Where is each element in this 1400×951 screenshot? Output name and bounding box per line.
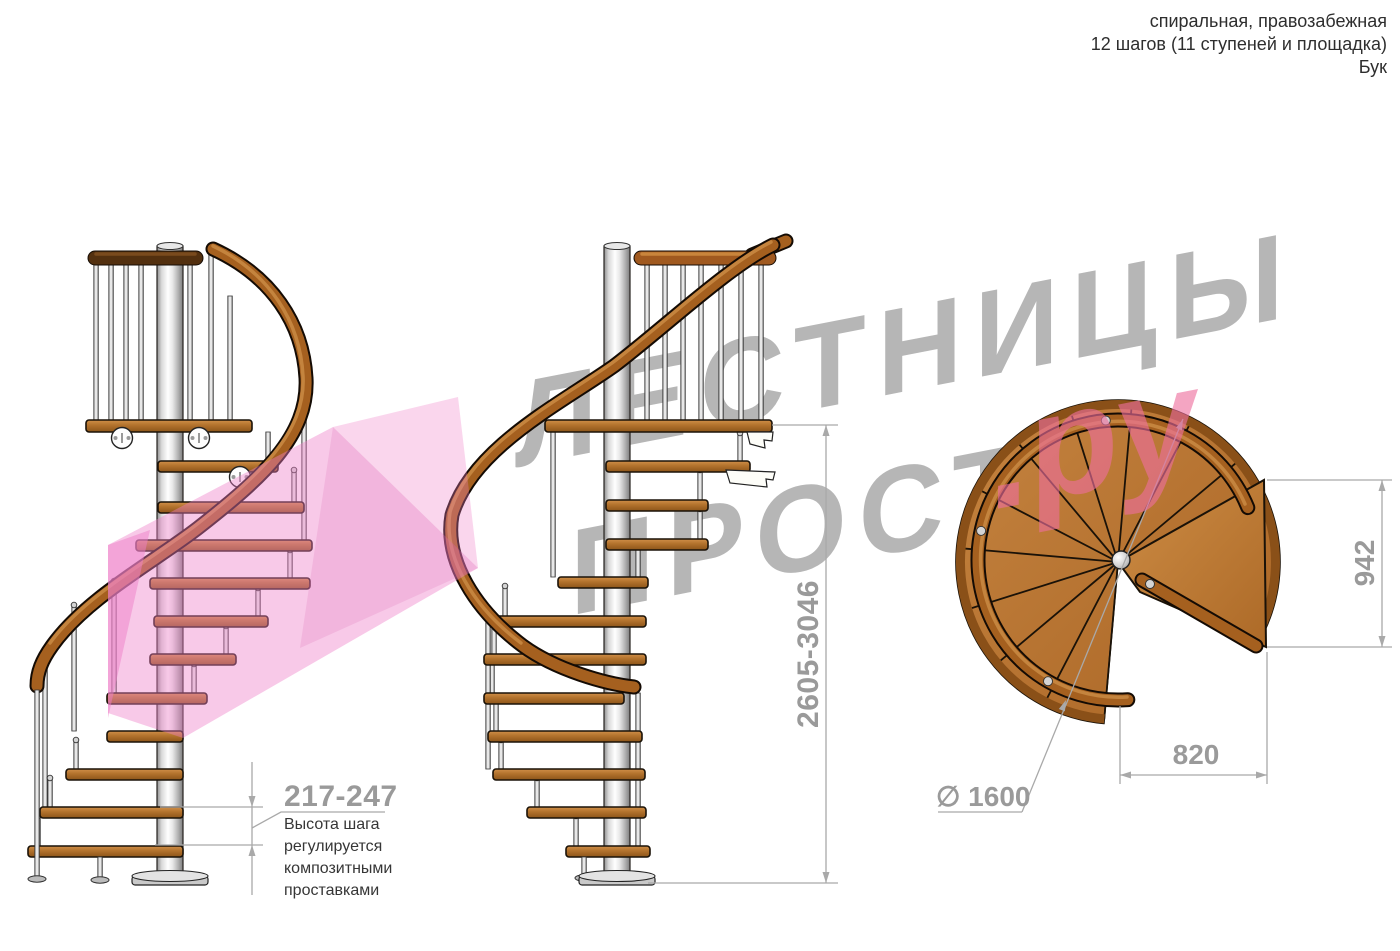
column-cap [157, 243, 183, 250]
dimension-plan-depth: 942 [1267, 480, 1392, 647]
spec-material: Бук [1091, 56, 1387, 79]
plan-width-value: 820 [1173, 739, 1220, 770]
note-line-4: проставками [284, 882, 379, 899]
step-height-value: 217-247 [284, 780, 398, 813]
note-line-3: композитными [284, 860, 392, 877]
plan-depth-value: 942 [1349, 540, 1380, 587]
landing-rail [95, 254, 196, 258]
diameter-value: ∅ 1600 [936, 781, 1030, 812]
elevation-view-front [28, 243, 312, 886]
dimension-plan-width: 820 [1120, 652, 1267, 784]
dimension-total-height: 2605-3046 [648, 425, 838, 883]
elevation-view-side [449, 241, 786, 885]
wall-brackets [726, 432, 775, 487]
drawing-sheet: ЛЕСТНИЦЫ ПРОСТО [0, 0, 1400, 951]
total-height-value: 2605-3046 [792, 580, 825, 728]
spec-type: спиральная, правозабежная [1091, 10, 1387, 33]
landing-board [545, 420, 772, 432]
note-line-2: регулируется [284, 838, 382, 855]
spec-block: спиральная, правозабежная 12 шагов (11 с… [1091, 10, 1387, 79]
column-cap [604, 243, 630, 250]
landing-board [86, 420, 252, 432]
note-line-1: Высота шага [284, 816, 380, 833]
spec-steps: 12 шагов (11 ступеней и площадка) [1091, 33, 1387, 56]
column [604, 246, 630, 878]
